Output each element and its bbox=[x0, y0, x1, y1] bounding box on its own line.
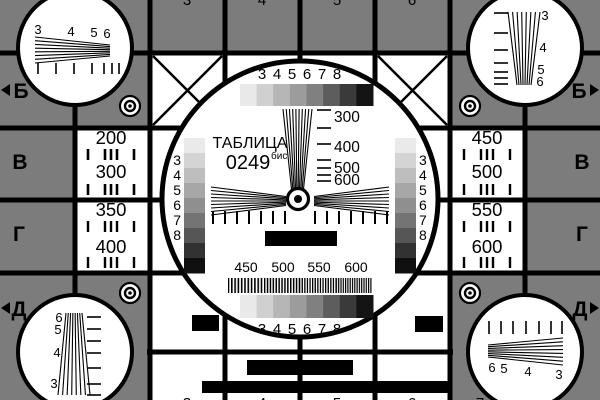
frequency-label: 550 bbox=[307, 259, 331, 275]
gray-scale-number: 3 bbox=[258, 321, 266, 338]
bottom-fragment: 7 bbox=[476, 395, 484, 400]
wedge-scale-label: 300 bbox=[334, 109, 360, 126]
column-number: 3 bbox=[419, 152, 427, 168]
gray-scale-number: 4 bbox=[273, 66, 281, 83]
row-letter-left: В bbox=[12, 151, 27, 174]
top-fragment: 5 bbox=[333, 0, 341, 9]
row-letter-right: Д bbox=[573, 298, 588, 321]
card-number-suffix: бис bbox=[271, 150, 287, 162]
column-number: 7 bbox=[173, 212, 181, 228]
bottom-fragment: 4 bbox=[258, 395, 266, 400]
card-title: ТАБЛИЦА bbox=[213, 135, 288, 152]
burst-frequency: 350 bbox=[96, 199, 127, 220]
gray-scale-number: 7 bbox=[318, 321, 326, 338]
column-number: 8 bbox=[173, 227, 181, 243]
bullseye-icon bbox=[288, 189, 309, 210]
wedge-scale-label: 600 bbox=[334, 172, 360, 189]
wedge-number: 5 bbox=[90, 25, 97, 40]
target-icon bbox=[120, 283, 140, 303]
grayscale-strip-top bbox=[240, 84, 374, 106]
wedge-number: 5 bbox=[54, 322, 61, 337]
burst-frequency: 450 bbox=[472, 127, 503, 148]
wedge-number: 4 bbox=[524, 364, 531, 379]
grayscale-column-left bbox=[184, 138, 205, 274]
black-bar-long bbox=[202, 381, 448, 393]
corner-circle-top-left: 3 4 5 6 bbox=[18, 0, 132, 105]
gray-scale-number: 7 bbox=[318, 66, 326, 83]
wedge-scale-label: 400 bbox=[334, 139, 360, 156]
gray-scale-number: 8 bbox=[333, 321, 341, 338]
frequency-label: 600 bbox=[344, 259, 368, 275]
column-number: 5 bbox=[173, 182, 181, 198]
bottom-fragment: 5 bbox=[333, 395, 341, 400]
column-number: 7 bbox=[419, 212, 427, 228]
burst-frequency: 200 bbox=[96, 127, 127, 148]
top-fragment: 4 bbox=[258, 0, 266, 9]
frequency-gratings bbox=[228, 278, 372, 293]
column-number: 8 bbox=[419, 227, 427, 243]
corner-circle-bottom-right: 6 5 4 3 bbox=[468, 295, 582, 400]
bottom-fragment: 6 bbox=[408, 395, 416, 400]
column-number: 6 bbox=[173, 197, 181, 213]
tv-test-card: 3 4 5 6 3 4 5 6 6 5 4 3 6 5 4 3 bbox=[0, 0, 600, 400]
row-letter-right: Г bbox=[576, 223, 588, 246]
frequency-label: 500 bbox=[271, 259, 295, 275]
top-fragment: 3 bbox=[183, 0, 191, 9]
burst-frequency: 550 bbox=[472, 199, 503, 220]
wedge-number: 5 bbox=[500, 361, 507, 376]
target-icon bbox=[460, 96, 480, 116]
corner-circle-top-right: 3 4 5 6 bbox=[468, 0, 582, 105]
grayscale-column-right bbox=[395, 138, 416, 274]
row-letter-left: Б bbox=[13, 80, 28, 103]
corner-circle-bottom-left: 6 5 4 3 bbox=[18, 295, 132, 400]
row-letter-right: В bbox=[574, 151, 589, 174]
black-square-left bbox=[192, 315, 219, 331]
wedge-number: 3 bbox=[555, 367, 562, 382]
wedge-number: 3 bbox=[50, 376, 57, 391]
wedge-number: 6 bbox=[488, 360, 495, 375]
test-card-canvas: 3 4 5 6 3 4 5 6 6 5 4 3 6 5 4 3 bbox=[0, 0, 600, 400]
bottom-fragment: 3 bbox=[183, 395, 191, 400]
gray-scale-number: 5 bbox=[288, 321, 296, 338]
black-bar-short bbox=[247, 360, 353, 375]
gray-scale-number: 5 bbox=[288, 66, 296, 83]
wedge-number: 3 bbox=[541, 8, 548, 23]
card-number: 0249 bbox=[226, 152, 271, 174]
burst-frequency: 600 bbox=[472, 236, 503, 257]
column-number: 4 bbox=[173, 167, 181, 183]
wedge-number: 3 bbox=[34, 22, 41, 37]
column-number: 6 bbox=[419, 197, 427, 213]
grayscale-strip-bottom bbox=[240, 295, 374, 318]
gray-scale-number: 4 bbox=[273, 321, 281, 338]
burst-frequency: 400 bbox=[96, 236, 127, 257]
black-reference-bar bbox=[265, 231, 337, 246]
gray-scale-number: 8 bbox=[333, 66, 341, 83]
target-icon bbox=[460, 283, 480, 303]
gray-scale-number: 6 bbox=[303, 321, 311, 338]
column-number: 5 bbox=[419, 182, 427, 198]
target-icon bbox=[120, 96, 140, 116]
black-square-right bbox=[415, 316, 443, 332]
row-letter-right: Б bbox=[571, 80, 586, 103]
burst-frequency: 300 bbox=[96, 161, 127, 182]
gray-scale-number: 6 bbox=[303, 66, 311, 83]
top-fragment: 6 bbox=[408, 0, 416, 9]
row-letter-left: Д bbox=[12, 298, 27, 321]
column-number: 3 bbox=[173, 152, 181, 168]
frequency-label: 450 bbox=[234, 259, 258, 275]
wedge-number: 4 bbox=[67, 24, 74, 39]
wedge-number: 4 bbox=[539, 40, 546, 55]
burst-frequency: 500 bbox=[472, 161, 503, 182]
wedge-number: 6 bbox=[536, 74, 543, 89]
wedge-number: 4 bbox=[53, 345, 60, 360]
column-number: 4 bbox=[419, 167, 427, 183]
row-letter-left: Г bbox=[13, 223, 25, 246]
gray-scale-number: 3 bbox=[258, 66, 266, 83]
wedge-number: 6 bbox=[103, 26, 110, 41]
